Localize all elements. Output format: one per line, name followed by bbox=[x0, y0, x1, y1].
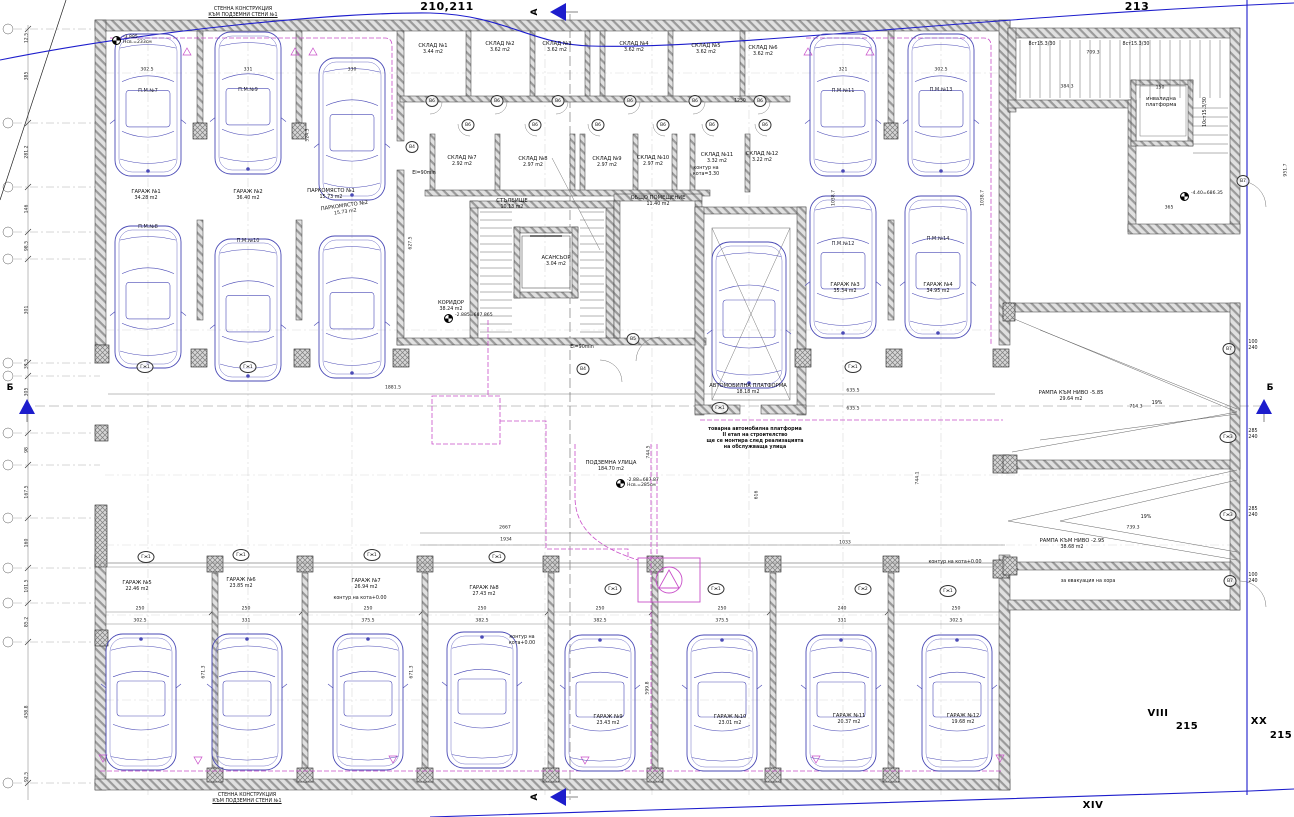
property-boundary-lines bbox=[0, 0, 1294, 817]
car bbox=[900, 196, 976, 338]
car bbox=[917, 635, 997, 771]
car bbox=[328, 634, 408, 770]
walls-layer bbox=[95, 20, 1240, 790]
car bbox=[207, 634, 287, 770]
floor-plan: П.М.№7П.М.№9П.М.№8П.М.№10П.М.№11П.М.№13П… bbox=[0, 0, 1294, 817]
car bbox=[682, 635, 762, 771]
car bbox=[101, 634, 181, 770]
plan-drawing bbox=[0, 0, 1294, 817]
car bbox=[560, 635, 640, 771]
grid-lines bbox=[3, 14, 1262, 800]
car bbox=[801, 635, 881, 771]
